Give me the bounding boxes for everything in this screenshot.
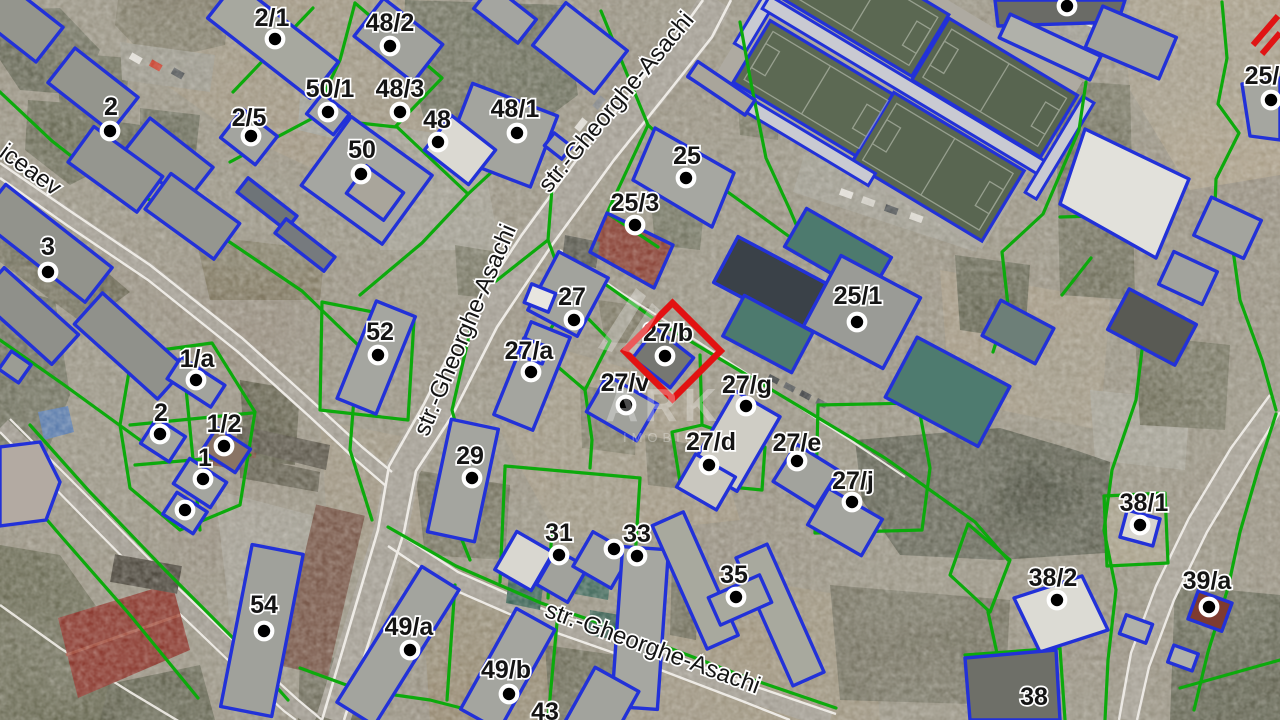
svg-text:IMOBIL: IMOBIL xyxy=(623,430,697,445)
svg-text:2/1: 2/1 xyxy=(255,4,290,32)
svg-text:2: 2 xyxy=(104,93,118,121)
svg-text:38/1: 38/1 xyxy=(1120,489,1169,517)
svg-text:25/1: 25/1 xyxy=(834,282,883,310)
svg-text:39/a: 39/a xyxy=(1183,567,1233,595)
svg-text:25: 25 xyxy=(673,142,701,170)
svg-text:3: 3 xyxy=(41,233,55,261)
svg-text:38: 38 xyxy=(1020,683,1048,711)
svg-text:2: 2 xyxy=(154,399,168,427)
svg-text:48/1: 48/1 xyxy=(491,95,540,123)
svg-text:52: 52 xyxy=(366,318,394,346)
svg-text:48/2: 48/2 xyxy=(366,9,415,37)
svg-text:54: 54 xyxy=(250,591,278,619)
svg-text:29: 29 xyxy=(456,442,484,470)
svg-text:27/j: 27/j xyxy=(832,467,874,495)
svg-text:48: 48 xyxy=(423,106,451,134)
svg-text:48/3: 48/3 xyxy=(376,75,425,103)
svg-text:1/2: 1/2 xyxy=(207,410,242,438)
svg-text:1/a: 1/a xyxy=(180,345,216,373)
svg-text:49/b: 49/b xyxy=(481,656,531,684)
svg-text:25/3: 25/3 xyxy=(611,189,660,217)
svg-text:27/g: 27/g xyxy=(722,371,772,399)
svg-text:50: 50 xyxy=(348,136,376,164)
svg-text:27: 27 xyxy=(558,283,586,311)
svg-text:ARK: ARK xyxy=(605,379,723,431)
svg-text:43: 43 xyxy=(531,698,559,720)
svg-text:35: 35 xyxy=(720,561,748,589)
svg-text:1: 1 xyxy=(198,444,212,472)
svg-text:49/a: 49/a xyxy=(385,613,435,641)
svg-text:25/: 25/ xyxy=(1245,62,1280,90)
svg-text:33: 33 xyxy=(623,520,651,548)
svg-text:50/1: 50/1 xyxy=(306,75,355,103)
svg-text:31: 31 xyxy=(545,519,573,547)
svg-text:38/2: 38/2 xyxy=(1029,564,1078,592)
svg-text:27/a: 27/a xyxy=(505,337,555,365)
